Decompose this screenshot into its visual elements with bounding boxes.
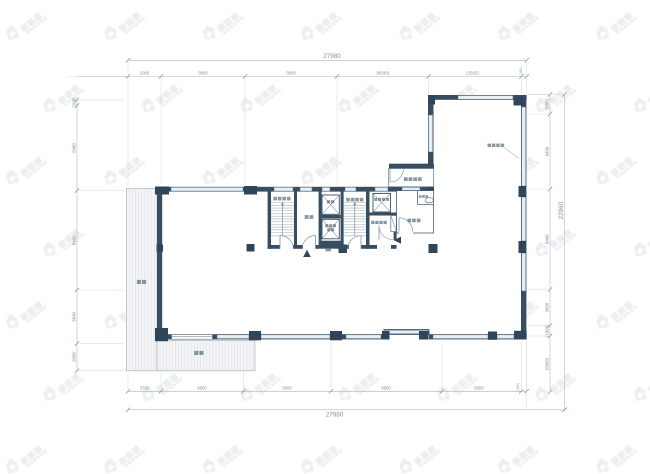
svg-text:(5600): (5600) bbox=[544, 357, 549, 370]
svg-text:8500: 8500 bbox=[474, 385, 484, 390]
svg-text:27980: 27980 bbox=[326, 412, 344, 419]
svg-text:9600: 9600 bbox=[282, 385, 292, 390]
svg-text:5040: 5040 bbox=[72, 311, 77, 321]
svg-text:(1000): (1000) bbox=[544, 324, 549, 337]
svg-text:8400: 8400 bbox=[544, 234, 549, 244]
svg-text:(600): (600) bbox=[544, 98, 549, 109]
svg-text:9800: 9800 bbox=[198, 71, 208, 76]
svg-text:(180): (180) bbox=[516, 383, 520, 391]
svg-text:9800: 9800 bbox=[197, 385, 207, 390]
svg-text:(180): (180) bbox=[519, 67, 523, 75]
svg-text:(1500): (1500) bbox=[466, 71, 479, 76]
svg-text:3600: 3600 bbox=[544, 302, 549, 312]
svg-text:2000: 2000 bbox=[72, 352, 77, 362]
svg-text:8400: 8400 bbox=[72, 143, 77, 153]
svg-text:9800: 9800 bbox=[381, 385, 391, 390]
svg-text:(100): (100) bbox=[72, 97, 77, 108]
svg-text:2000: 2000 bbox=[140, 71, 150, 76]
svg-text:3700: 3700 bbox=[140, 385, 150, 390]
svg-text:(8500): (8500) bbox=[377, 71, 390, 76]
svg-text:9600: 9600 bbox=[286, 71, 296, 76]
svg-text:8400: 8400 bbox=[544, 146, 549, 156]
svg-text:8400: 8400 bbox=[72, 235, 77, 245]
svg-text:27980: 27980 bbox=[323, 53, 341, 60]
svg-text:22960: 22960 bbox=[558, 201, 565, 219]
